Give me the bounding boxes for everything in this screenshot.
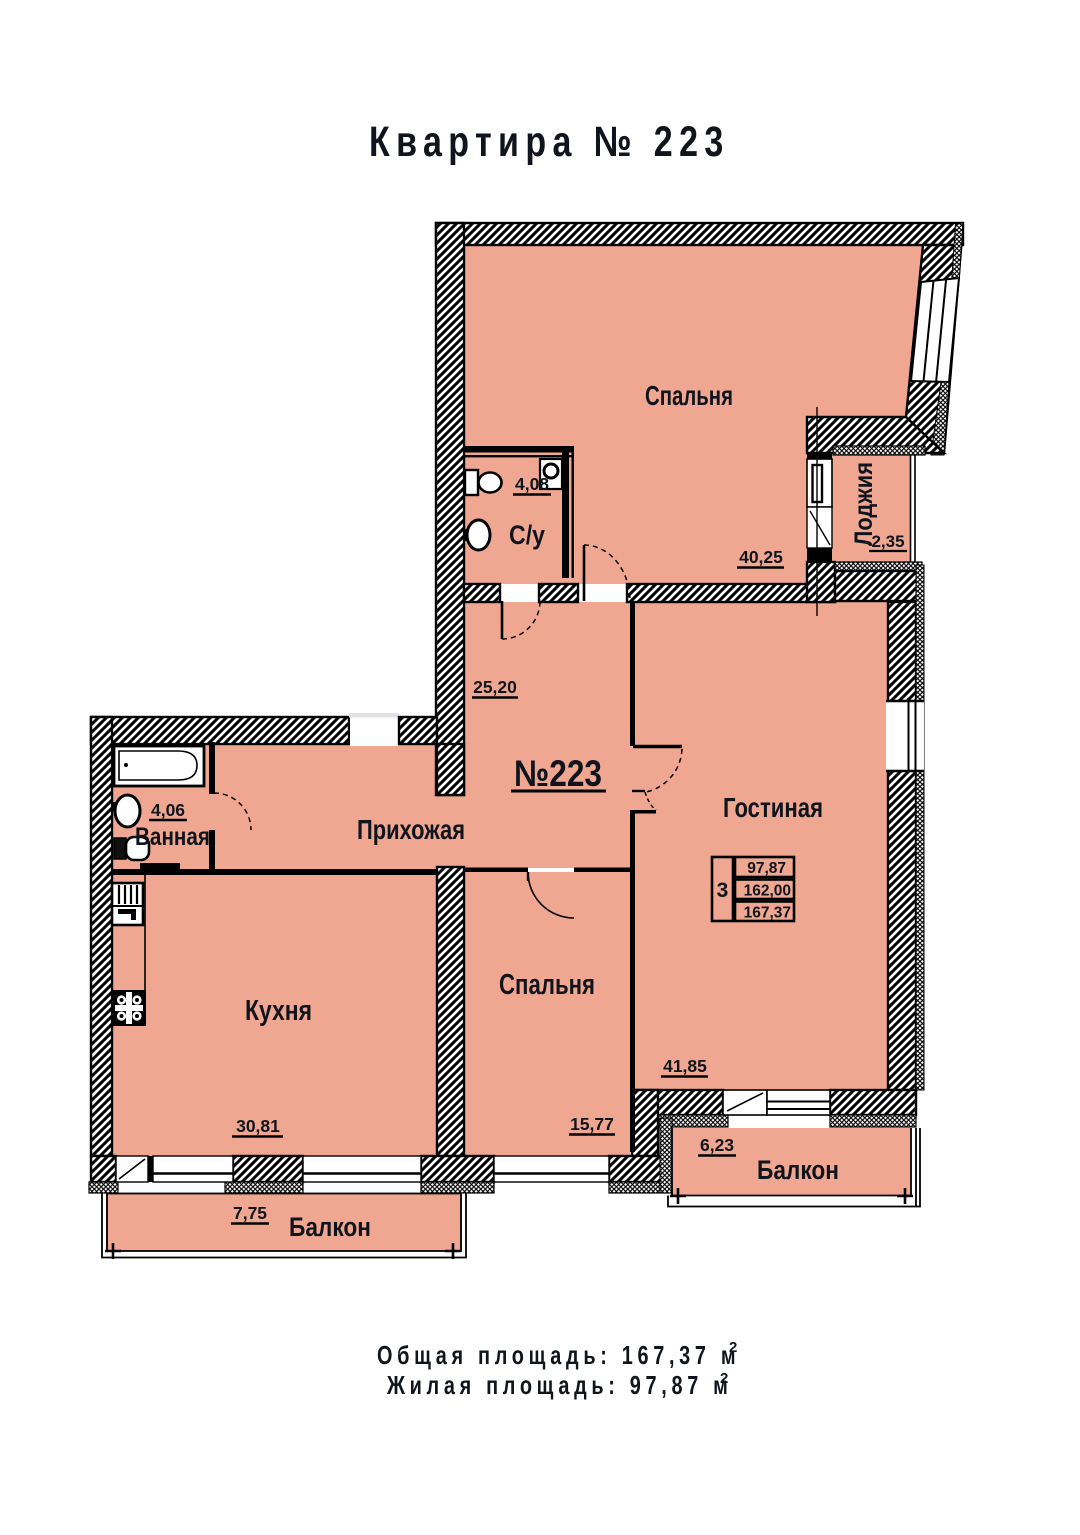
svg-text:Гостиная: Гостиная <box>723 792 823 823</box>
svg-text:4,08: 4,08 <box>515 474 549 494</box>
svg-text:2,35: 2,35 <box>871 532 904 551</box>
svg-text:40,25: 40,25 <box>739 547 783 567</box>
svg-text:Балкон: Балкон <box>757 1155 839 1185</box>
svg-text:2: 2 <box>720 1370 728 1387</box>
svg-text:41,85: 41,85 <box>663 1056 707 1076</box>
svg-text:167,37: 167,37 <box>744 905 791 922</box>
svg-text:Прихожая: Прихожая <box>357 814 465 845</box>
svg-text:97,87: 97,87 <box>747 860 786 877</box>
svg-text:Спальня: Спальня <box>499 969 595 1001</box>
svg-text:15,77: 15,77 <box>570 1114 614 1134</box>
svg-text:25,20: 25,20 <box>473 677 517 697</box>
svg-text:3: 3 <box>717 879 729 902</box>
svg-text:Балкон: Балкон <box>289 1212 371 1242</box>
svg-text:30,81: 30,81 <box>236 1116 280 1136</box>
svg-text:162,00: 162,00 <box>744 883 791 900</box>
svg-text:Кухня: Кухня <box>245 995 312 1027</box>
svg-text:№223: №223 <box>514 753 602 794</box>
svg-text:2: 2 <box>729 1339 737 1356</box>
svg-text:Общая площадь: 167,37 м: Общая площадь: 167,37 м <box>377 1341 740 1370</box>
svg-text:4,06: 4,06 <box>151 800 185 820</box>
svg-text:7,75: 7,75 <box>233 1203 267 1223</box>
svg-text:6,23: 6,23 <box>700 1135 734 1155</box>
svg-text:Спальня: Спальня <box>645 380 733 411</box>
svg-text:Жилая площадь: 97,87 м: Жилая площадь: 97,87 м <box>386 1371 732 1400</box>
svg-text:С/у: С/у <box>509 520 545 550</box>
svg-text:Ванная: Ванная <box>135 823 210 851</box>
svg-text:Квартира № 223: Квартира № 223 <box>369 118 730 165</box>
